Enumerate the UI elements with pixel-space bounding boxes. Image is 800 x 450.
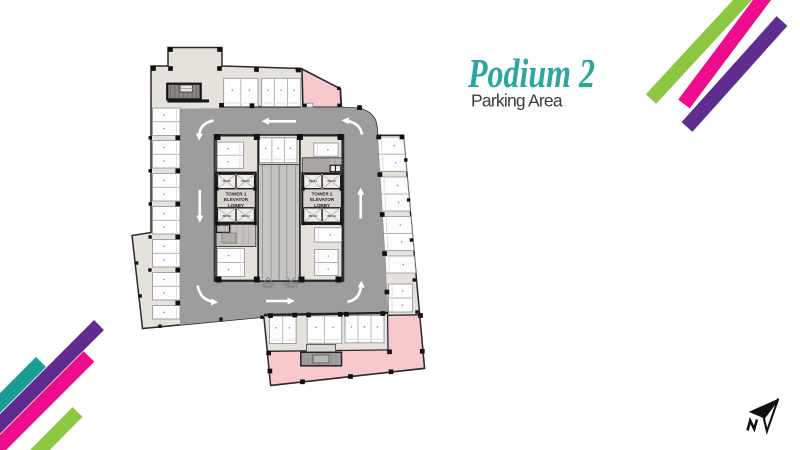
svg-text:Podium 2: Podium 2	[467, 50, 595, 96]
svg-text:PB-01: PB-01	[223, 179, 232, 183]
svg-text:PB-04: PB-04	[327, 214, 336, 218]
svg-text:PB-02: PB-02	[327, 179, 336, 183]
svg-text:LOBBY: LOBBY	[314, 203, 330, 208]
svg-text:PODIUM 1: PODIUM 1	[285, 285, 297, 288]
svg-text:Parking Area: Parking Area	[471, 91, 563, 111]
svg-text:TOWER 1: TOWER 1	[226, 191, 247, 196]
svg-text:TOWER 2: TOWER 2	[312, 191, 333, 196]
svg-text:PB-03: PB-03	[223, 214, 232, 218]
svg-text:ELEVATOR: ELEVATOR	[224, 197, 249, 202]
svg-text:PB-04: PB-04	[241, 214, 250, 218]
svg-text:PB-02: PB-02	[241, 179, 250, 183]
svg-text:LOBBY: LOBBY	[228, 203, 244, 208]
svg-text:PB-03: PB-03	[309, 214, 318, 218]
svg-text:PODIUM 1: PODIUM 1	[262, 285, 274, 288]
svg-text:ELEVATOR: ELEVATOR	[310, 197, 335, 202]
svg-text:PB-01: PB-01	[309, 179, 318, 183]
